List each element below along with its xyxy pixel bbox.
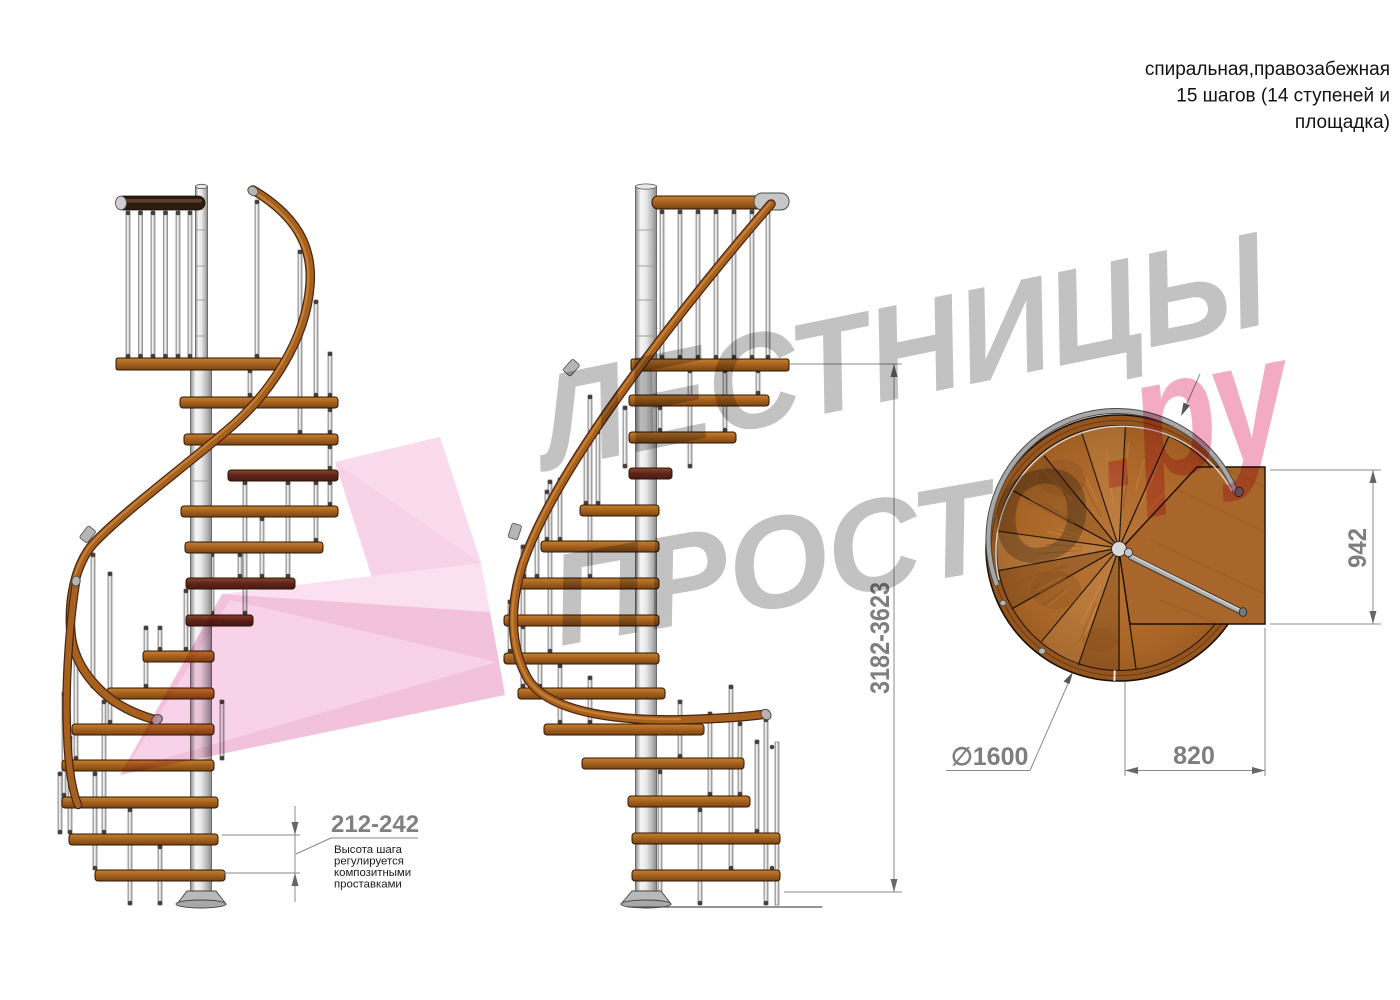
- svg-text:942: 942: [1344, 528, 1372, 568]
- svg-text:Высота шага: Высота шага: [334, 844, 403, 856]
- svg-text:∅1600: ∅1600: [951, 743, 1028, 771]
- svg-text:спиральная,правозабежная: спиральная,правозабежная: [1145, 59, 1390, 80]
- svg-text:композитными: композитными: [334, 867, 411, 879]
- svg-text:820: 820: [1173, 742, 1215, 770]
- svg-text:регулируется: регулируется: [334, 856, 404, 868]
- svg-text:площадка): площадка): [1295, 112, 1390, 133]
- svg-text:проставками: проставками: [334, 879, 402, 891]
- svg-text:212-242: 212-242: [331, 811, 419, 838]
- svg-text:15 шагов (14 ступеней и: 15 шагов (14 ступеней и: [1176, 86, 1390, 107]
